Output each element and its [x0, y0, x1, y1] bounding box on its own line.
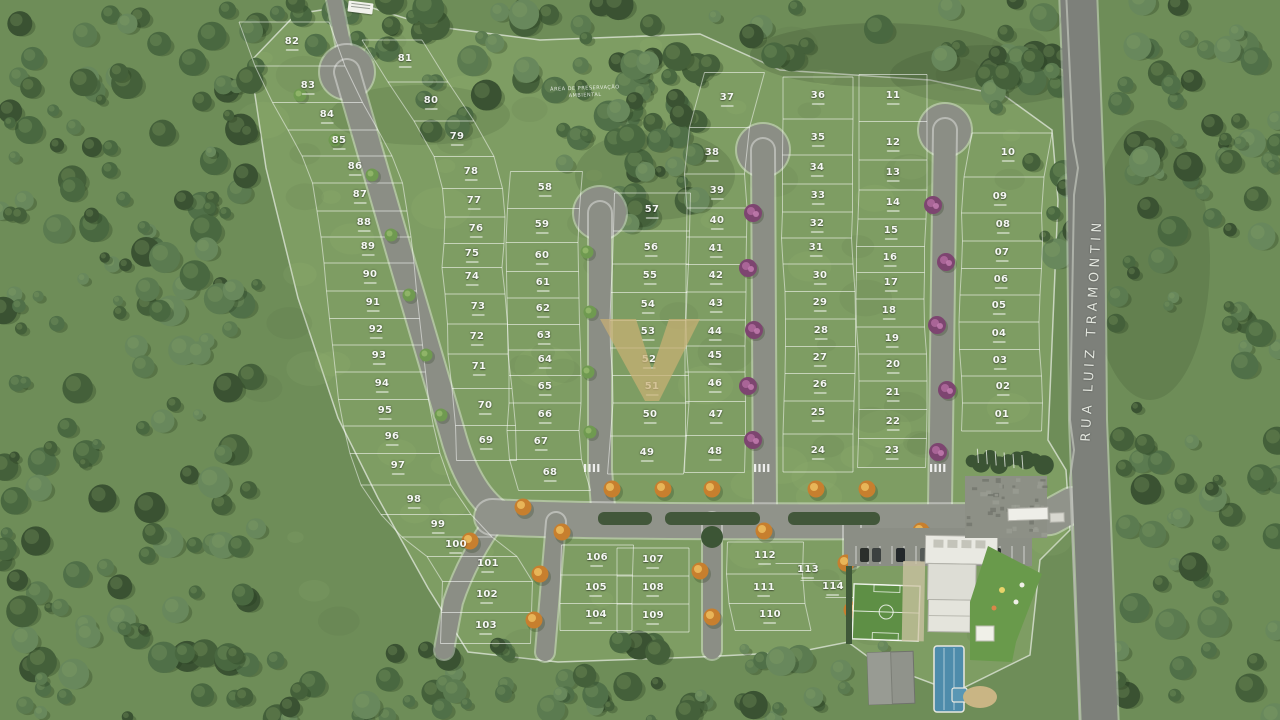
kiosk-building — [867, 651, 915, 705]
swimming-pool — [934, 646, 967, 712]
hedge — [846, 566, 852, 644]
masterplan-aerial-view: RUA LUIZ TRAMONTIN ÁREA DE PRESERVAÇÃO A… — [0, 0, 1280, 720]
preservation-area-label: ÁREA DE PRESERVAÇÃO AMBIENTAL — [550, 84, 620, 99]
sand-court — [963, 686, 997, 708]
